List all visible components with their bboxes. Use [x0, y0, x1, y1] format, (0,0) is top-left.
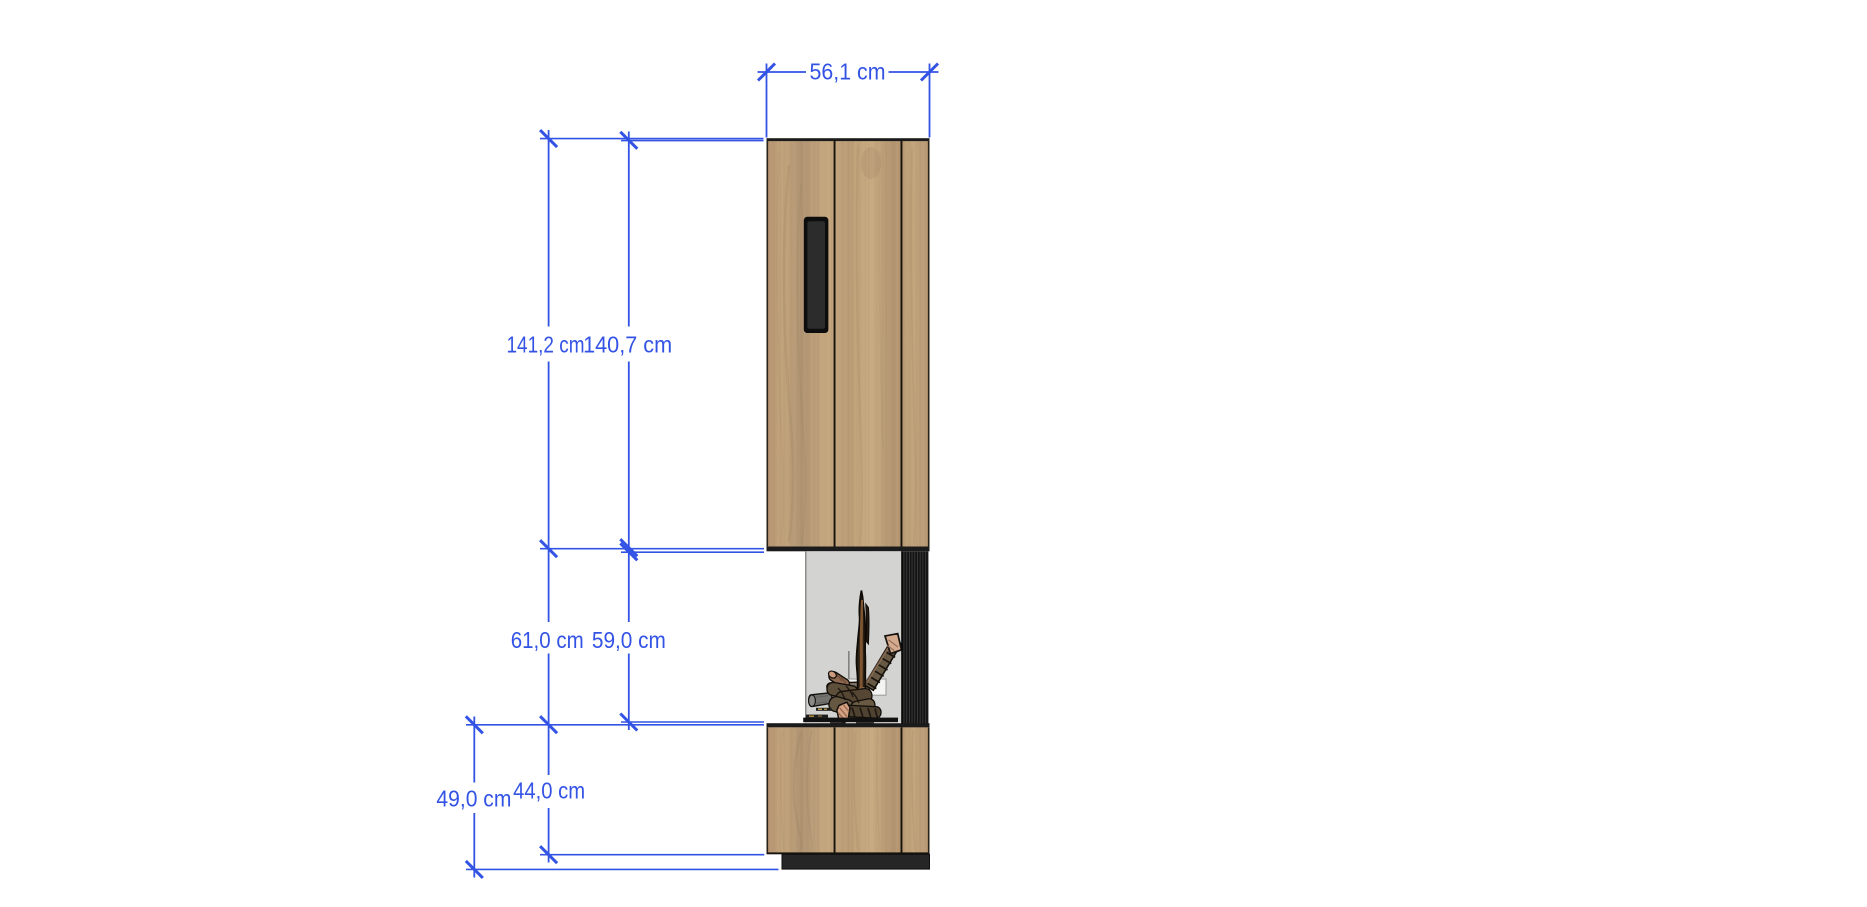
- svg-text:49,0 cm: 49,0 cm: [436, 786, 511, 812]
- svg-text:140,7 cm: 140,7 cm: [583, 331, 672, 357]
- svg-text:141,2 cm: 141,2 cm: [507, 331, 585, 357]
- svg-text:56,1 cm: 56,1 cm: [810, 59, 886, 85]
- svg-text:59,0 cm: 59,0 cm: [592, 627, 666, 653]
- svg-text:44,0 cm: 44,0 cm: [513, 778, 585, 804]
- svg-text:61,0 cm: 61,0 cm: [511, 627, 584, 653]
